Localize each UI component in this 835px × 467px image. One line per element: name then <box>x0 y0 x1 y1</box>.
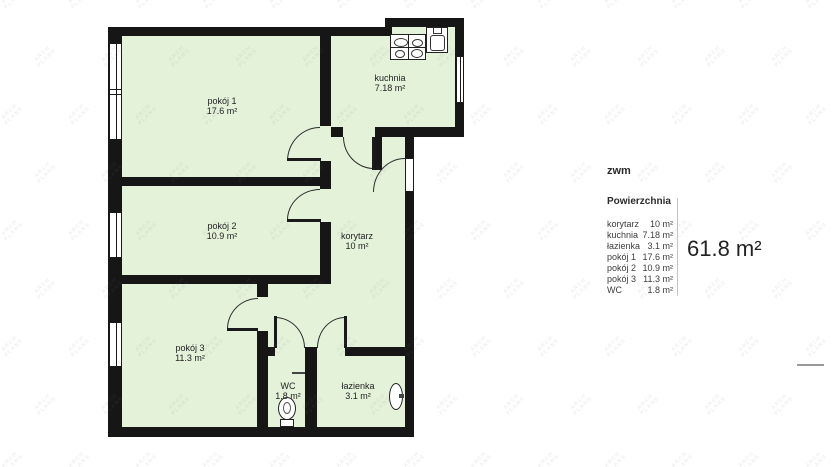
legend-row: pokój 117.6 m² <box>607 252 673 263</box>
wc-fitting-mark <box>292 372 305 374</box>
door-opening <box>275 347 305 356</box>
watermark-text: ARCHPLANS <box>568 391 593 416</box>
room-label-kuchnia: kuchnia 7.18 m² <box>340 73 440 93</box>
door-opening <box>257 297 268 331</box>
room-label-lazienka: łazienka 3.1 m² <box>308 381 408 401</box>
watermark-text: ARCHPLANS <box>200 449 225 467</box>
watermark-text: ARCHPLANS <box>568 43 593 68</box>
watermark-text: ARCHPLANS <box>602 449 627 467</box>
window <box>109 212 122 258</box>
watermark-text: ARCHPLANS <box>66 101 91 126</box>
door-leaf <box>274 316 277 348</box>
door-leaf <box>287 158 321 161</box>
watermark-text: ARCHPLANS <box>769 275 794 300</box>
door-leaf <box>227 328 258 331</box>
watermark-text: ARCHPLANS <box>736 0 761 11</box>
toilet-icon <box>278 397 296 427</box>
floor-plan-page: ARCHPLANSARCHPLANSARCHPLANSARCHPLANSARCH… <box>0 0 835 467</box>
watermark-text: ARCHPLANS <box>535 449 560 467</box>
watermark-text: ARCHPLANS <box>769 391 794 416</box>
window <box>456 56 464 103</box>
room-area: 7.18 m² <box>375 83 406 93</box>
watermark-text: ARCHPLANS <box>736 449 761 467</box>
watermark-text: ARCHPLANS <box>32 391 57 416</box>
watermark-text: ARCHPLANS <box>535 333 560 358</box>
watermark-text: ARCHPLANS <box>0 101 24 126</box>
watermark-text: ARCHPLANS <box>535 0 560 11</box>
legend-row: WC1.8 m² <box>607 285 673 296</box>
watermark-text: ARCHPLANS <box>669 0 694 11</box>
window-glass-line <box>116 323 117 366</box>
legend-row-value: 1.8 m² <box>647 285 673 296</box>
wall <box>108 27 392 36</box>
legend-row: korytarz10 m² <box>607 219 673 230</box>
legend-title: zwm <box>607 165 631 177</box>
room-area: 1.8 m² <box>275 391 301 401</box>
watermark-text: ARCHPLANS <box>66 217 91 242</box>
watermark-text: ARCHPLANS <box>803 449 828 467</box>
watermark-text: ARCHPLANS <box>401 449 426 467</box>
watermark-text: ARCHPLANS <box>501 43 526 68</box>
door-opening <box>320 189 331 222</box>
watermark-text: ARCHPLANS <box>803 217 828 242</box>
watermark-text: ARCHPLANS <box>669 101 694 126</box>
watermark-text: ARCHPLANS <box>568 275 593 300</box>
window <box>109 322 122 367</box>
watermark-text: ARCHPLANS <box>32 43 57 68</box>
watermark-text: ARCHPLANS <box>669 333 694 358</box>
room-area: 10.9 m² <box>207 231 238 241</box>
watermark-text: ARCHPLANS <box>568 159 593 184</box>
wall <box>385 18 392 32</box>
legend-row-label: pokój 1 <box>607 252 636 263</box>
room-name: pokój 1 <box>207 96 236 106</box>
legend-row-value: 3.1 m² <box>647 241 673 252</box>
watermark-text: ARCHPLANS <box>501 159 526 184</box>
watermark-text: ARCHPLANS <box>635 391 660 416</box>
door-leaf <box>287 219 321 222</box>
dimension-dash <box>797 364 824 366</box>
watermark-text: ARCHPLANS <box>468 333 493 358</box>
watermark-text: ARCHPLANS <box>602 101 627 126</box>
door-opening <box>320 126 331 161</box>
legend-row-label: kuchnia <box>607 230 638 241</box>
legend-row-value: 11.3 m² <box>643 274 673 285</box>
door-opening <box>317 347 345 356</box>
room-label-korytarz: korytarz 10 m² <box>307 231 407 251</box>
room-label-pokoj-1: pokój 1 17.6 m² <box>172 96 272 116</box>
watermark-text: ARCHPLANS <box>434 391 459 416</box>
watermark-text: ARCHPLANS <box>769 159 794 184</box>
window-bar <box>110 89 121 90</box>
room-area: 10 m² <box>345 241 368 251</box>
watermark-text: ARCHPLANS <box>702 43 727 68</box>
watermark-text: ARCHPLANS <box>602 0 627 11</box>
watermark-text: ARCHPLANS <box>267 449 292 467</box>
door-opening <box>343 127 375 137</box>
watermark-text: ARCHPLANS <box>0 217 24 242</box>
watermark-text: ARCHPLANS <box>468 101 493 126</box>
watermark-text: ARCHPLANS <box>736 333 761 358</box>
window-bar <box>110 94 121 95</box>
room-name: pokój 2 <box>207 221 236 231</box>
watermark-text: ARCHPLANS <box>736 101 761 126</box>
room-area: 3.1 m² <box>345 391 371 401</box>
watermark-text: ARCHPLANS <box>769 43 794 68</box>
watermark-text: ARCHPLANS <box>66 0 91 11</box>
watermark-text: ARCHPLANS <box>133 0 158 11</box>
legend-divider <box>677 198 678 296</box>
door-leaf <box>344 316 347 348</box>
legend-row-label: pokój 2 <box>607 263 636 274</box>
watermark-text: ARCHPLANS <box>669 449 694 467</box>
watermark-text: ARCHPLANS <box>0 0 24 11</box>
watermark-text: ARCHPLANS <box>501 275 526 300</box>
window-glass-line <box>116 44 117 139</box>
watermark-text: ARCHPLANS <box>32 159 57 184</box>
room-area: 11.3 m² <box>175 353 205 363</box>
watermark-text: ARCHPLANS <box>468 0 493 11</box>
room-name: pokój 3 <box>175 343 204 353</box>
watermark-text: ARCHPLANS <box>66 449 91 467</box>
watermark-text: ARCHPLANS <box>803 0 828 11</box>
watermark-text: ARCHPLANS <box>635 159 660 184</box>
watermark-text: ARCHPLANS <box>635 43 660 68</box>
legend-row-value: 10.9 m² <box>642 263 673 274</box>
legend-row: pokój 311.3 m² <box>607 274 673 285</box>
watermark-text: ARCHPLANS <box>200 0 225 11</box>
watermark-text: ARCHPLANS <box>0 449 24 467</box>
legend-row-label: korytarz <box>607 219 639 230</box>
window-glass-line <box>116 213 117 257</box>
watermark-text: ARCHPLANS <box>602 333 627 358</box>
room-label-pokoj-2: pokój 2 10.9 m² <box>172 221 272 241</box>
room-name: kuchnia <box>374 73 405 83</box>
entrance-door <box>405 158 414 192</box>
wall <box>375 137 382 170</box>
legend-row: pokój 210.9 m² <box>607 263 673 274</box>
watermark-text: ARCHPLANS <box>803 333 828 358</box>
wall <box>122 275 331 284</box>
window-glass-line <box>460 57 461 102</box>
watermark-text: ARCHPLANS <box>468 217 493 242</box>
wall <box>122 177 320 186</box>
watermark-text: ARCHPLANS <box>267 0 292 11</box>
room-name: korytarz <box>341 231 373 241</box>
room-name: łazienka <box>341 381 374 391</box>
stove-icon <box>390 34 426 60</box>
watermark-text: ARCHPLANS <box>66 333 91 358</box>
watermark-text: ARCHPLANS <box>32 275 57 300</box>
room-name: WC <box>281 381 296 391</box>
watermark-text: ARCHPLANS <box>0 333 24 358</box>
room-label-pokoj-3: pokój 3 11.3 m² <box>140 343 240 363</box>
watermark-text: ARCHPLANS <box>803 101 828 126</box>
watermark-text: ARCHPLANS <box>702 275 727 300</box>
total-area: 61.8 m² <box>687 236 762 262</box>
watermark-text: ARCHPLANS <box>434 275 459 300</box>
legend-row-label: pokój 3 <box>607 274 636 285</box>
legend-row-label: łazienka <box>607 241 640 252</box>
legend-row-label: WC <box>607 285 622 296</box>
legend-row-value: 17.6 m² <box>642 252 673 263</box>
watermark-text: ARCHPLANS <box>702 159 727 184</box>
watermark-text: ARCHPLANS <box>434 159 459 184</box>
legend-row-value: 10 m² <box>650 219 673 230</box>
kitchen-sink-icon <box>426 27 448 53</box>
legend-row: łazienka3.1 m² <box>607 241 673 252</box>
watermark-text: ARCHPLANS <box>501 391 526 416</box>
room-area: 17.6 m² <box>207 106 238 116</box>
watermark-text: ARCHPLANS <box>401 0 426 11</box>
watermark-text: ARCHPLANS <box>468 449 493 467</box>
watermark-text: ARCHPLANS <box>334 0 359 11</box>
watermark-text: ARCHPLANS <box>535 217 560 242</box>
legend-row-value: 7.18 m² <box>642 230 673 241</box>
watermark-text: ARCHPLANS <box>133 449 158 467</box>
door-leaf <box>372 137 375 170</box>
window <box>109 43 122 140</box>
legend-rows: korytarz10 m²kuchnia7.18 m²łazienka3.1 m… <box>607 219 673 296</box>
wall <box>385 18 464 27</box>
legend-row: kuchnia7.18 m² <box>607 230 673 241</box>
legend-section-title: Powierzchnia <box>607 196 671 207</box>
watermark-text: ARCHPLANS <box>702 391 727 416</box>
watermark-text: ARCHPLANS <box>535 101 560 126</box>
watermark-text: ARCHPLANS <box>334 449 359 467</box>
